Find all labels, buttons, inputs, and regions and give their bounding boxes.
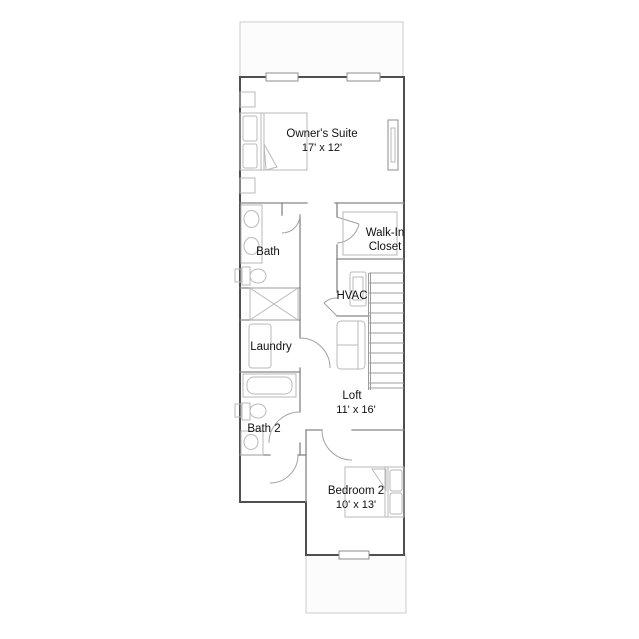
pillow bbox=[390, 493, 402, 514]
bathtub bbox=[247, 377, 292, 394]
sink bbox=[244, 211, 259, 228]
window bbox=[266, 73, 298, 81]
upper-roof-outline bbox=[240, 22, 403, 77]
owners-suite-dims: 17' x 12' bbox=[302, 142, 342, 154]
lower-roof-outline bbox=[306, 555, 406, 613]
bedroom-2-dims: 10' x 13' bbox=[336, 499, 376, 511]
bath-label: Bath bbox=[256, 246, 280, 258]
hvac-door bbox=[324, 298, 337, 316]
pillow bbox=[243, 144, 257, 168]
toilet-bowl bbox=[250, 404, 266, 418]
pillow bbox=[390, 470, 402, 491]
walk-in-closet-label-1: Walk-In bbox=[366, 227, 405, 239]
walk-in-closet-label-2: Closet bbox=[369, 241, 402, 253]
toilet-bowl bbox=[250, 269, 266, 283]
bath-2-label: Bath 2 bbox=[247, 423, 280, 435]
floor-plan-svg: Owner's Suite 17' x 12' Bath Walk-In Clo… bbox=[0, 0, 639, 639]
owners-suite-label: Owner's Suite bbox=[286, 128, 357, 140]
sofa bbox=[337, 321, 365, 369]
bedroom-2-label: Bedroom 2 bbox=[328, 485, 384, 497]
headboard bbox=[261, 113, 264, 170]
sink bbox=[244, 435, 258, 450]
bedroom-2-door-arc bbox=[322, 430, 352, 460]
nightstand bbox=[240, 92, 255, 107]
hvac-label: HVAC bbox=[336, 290, 367, 302]
pillow bbox=[243, 116, 257, 141]
nightstand bbox=[240, 178, 255, 193]
staircase bbox=[369, 273, 405, 390]
closet-door-arc bbox=[270, 455, 298, 483]
toilet-tank bbox=[242, 403, 250, 420]
sheet-fold bbox=[264, 144, 277, 170]
loft-dims: 11' x 16' bbox=[336, 404, 375, 416]
toilet-tank bbox=[242, 267, 250, 285]
bath-door-arc bbox=[282, 215, 300, 233]
window bbox=[339, 551, 369, 559]
walk-in-closet-door bbox=[337, 217, 359, 243]
laundry-door-arc bbox=[300, 338, 330, 368]
floor-plan-page: Owner's Suite 17' x 12' Bath Walk-In Clo… bbox=[0, 0, 639, 639]
linen-box bbox=[250, 288, 298, 320]
laundry-label: Laundry bbox=[250, 341, 292, 353]
window bbox=[347, 73, 380, 81]
loft-label: Loft bbox=[342, 390, 362, 402]
